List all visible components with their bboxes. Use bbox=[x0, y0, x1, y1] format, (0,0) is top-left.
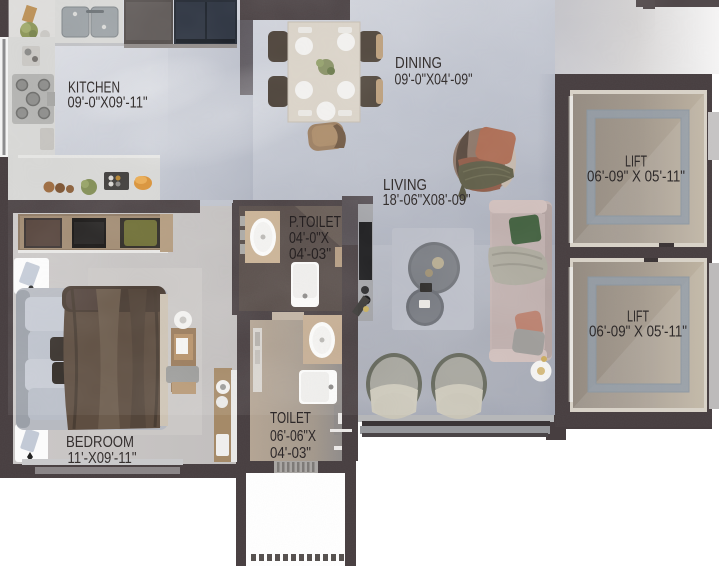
svg-text:06'-06"X: 06'-06"X bbox=[270, 428, 316, 445]
svg-text:DINING: DINING bbox=[395, 55, 442, 72]
svg-text:06'-09" X 05'-11": 06'-09" X 05'-11" bbox=[589, 324, 687, 341]
svg-text:09'-0"X04'-09": 09'-0"X04'-09" bbox=[395, 72, 473, 89]
svg-text:06'-09" X 05'-11": 06'-09" X 05'-11" bbox=[587, 169, 685, 186]
svg-text:09'-0"X09'-11": 09'-0"X09'-11" bbox=[68, 95, 148, 112]
svg-text:11'-X09'-11": 11'-X09'-11" bbox=[68, 450, 137, 467]
svg-text:P.TOILET: P.TOILET bbox=[289, 214, 341, 231]
svg-text:BEDROOM: BEDROOM bbox=[66, 434, 134, 451]
svg-text:04'-03": 04'-03" bbox=[270, 445, 311, 462]
svg-text:04'-03": 04'-03" bbox=[289, 246, 331, 263]
svg-text:04'-0"X: 04'-0"X bbox=[289, 230, 329, 247]
svg-text:18'-06"X08'-09": 18'-06"X08'-09" bbox=[383, 192, 471, 209]
svg-text:TOILET: TOILET bbox=[270, 410, 311, 427]
